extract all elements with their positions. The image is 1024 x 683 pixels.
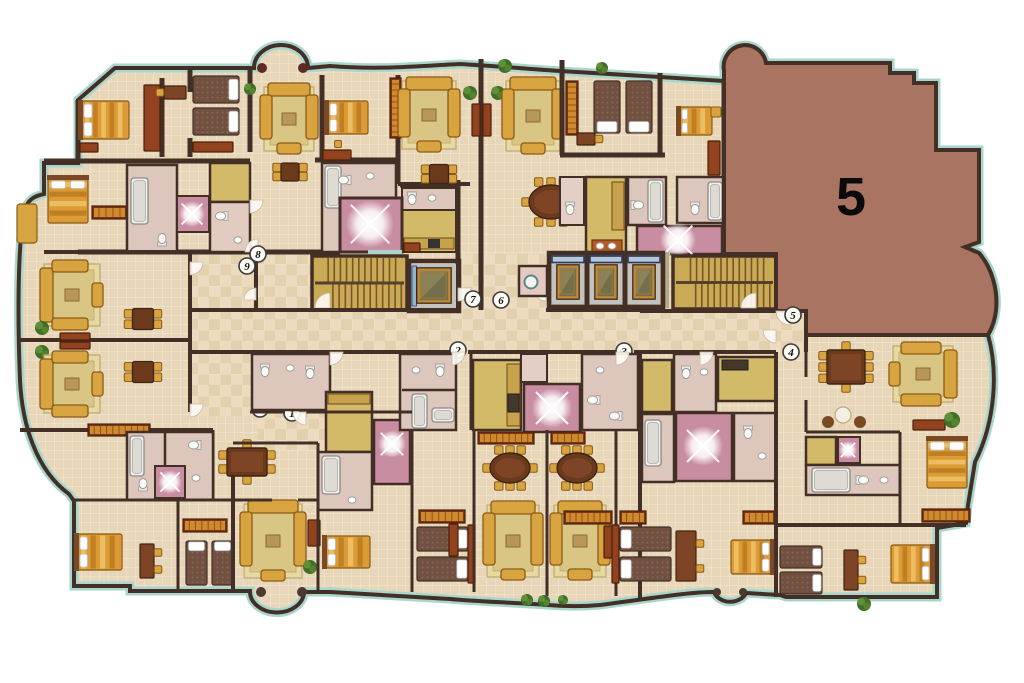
svg-text:7: 7 bbox=[470, 294, 476, 306]
svg-text:4: 4 bbox=[787, 347, 794, 359]
svg-text:9: 9 bbox=[244, 261, 250, 273]
svg-text:6: 6 bbox=[498, 295, 504, 307]
svg-text:8: 8 bbox=[255, 249, 261, 261]
svg-text:5: 5 bbox=[790, 310, 796, 322]
svg-text:5: 5 bbox=[836, 167, 866, 227]
